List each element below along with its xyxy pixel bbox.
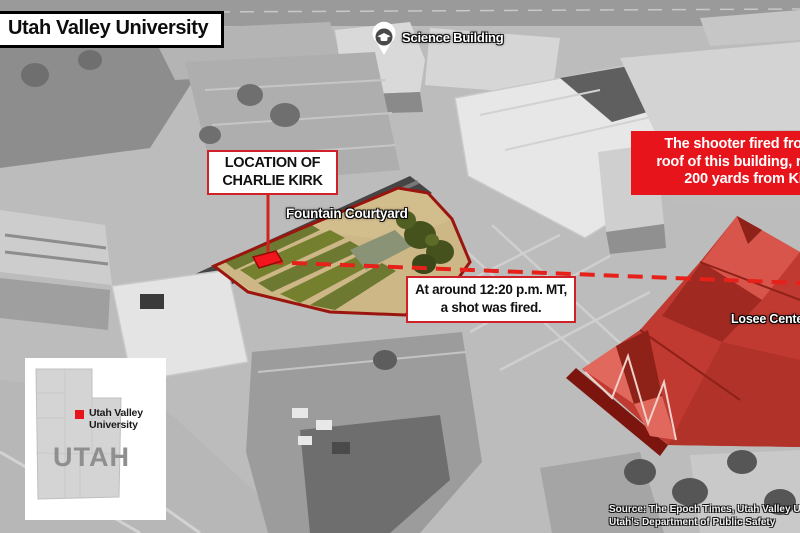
fountain-courtyard-label: Fountain Courtyard (286, 206, 408, 221)
source-line1: Source: The Epoch Times, Utah Valley Uni… (609, 503, 800, 516)
inset-marker-label: Utah Valley University (89, 407, 143, 431)
title-box: Utah Valley University (0, 11, 224, 48)
shot-time-line2: a shot was fired. (408, 299, 574, 317)
kirk-location-line1: LOCATION OF (209, 154, 336, 172)
kirk-location-callout: LOCATION OF CHARLIE KIRK (207, 150, 338, 195)
inset-location-marker (75, 410, 84, 419)
shooter-line3: 200 yards from Kirk. (631, 171, 800, 189)
shot-time-callout: At around 12:20 p.m. MT, a shot was fire… (406, 276, 576, 323)
shooter-line2: roof of this building, roughly (631, 154, 800, 172)
science-building-label: Science Building (402, 30, 504, 45)
shooter-callout: The shooter fired from the roof of this … (631, 131, 800, 195)
utah-state-shape (25, 358, 166, 520)
source-line2: Utah's Department of Public Safety (609, 516, 800, 529)
losee-center-label: Losee Center (731, 312, 800, 326)
utah-state-label: UTAH (53, 442, 130, 473)
inset-marker-label-line2: University (89, 419, 143, 431)
inset-marker-label-line1: Utah Valley (89, 407, 143, 419)
kirk-location-line2: CHARLIE KIRK (209, 172, 336, 190)
shot-time-line1: At around 12:20 p.m. MT, (408, 281, 574, 299)
inset-map: Utah Valley University UTAH (25, 358, 166, 520)
news-map-graphic: Utah Valley University Science Building … (0, 0, 800, 533)
shooter-line1: The shooter fired from the (631, 136, 800, 154)
source-credit: Source: The Epoch Times, Utah Valley Uni… (609, 503, 800, 529)
